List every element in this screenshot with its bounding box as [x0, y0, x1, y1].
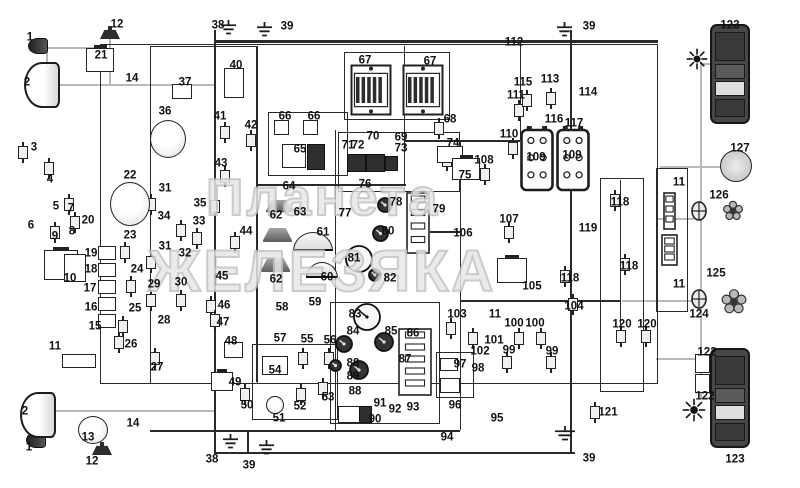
label-109: 109: [562, 150, 581, 162]
sensor-glyph: [468, 332, 478, 345]
label-39: 39: [243, 460, 256, 472]
label-105: 105: [522, 281, 541, 293]
label-74: 74: [447, 138, 460, 150]
label-41: 41: [214, 111, 227, 123]
label-67: 67: [424, 56, 437, 68]
label-85: 85: [385, 326, 398, 338]
label-50: 50: [241, 400, 254, 412]
label-111: 111: [507, 90, 525, 102]
label-77: 77: [339, 208, 352, 220]
label-70: 70: [367, 131, 380, 143]
label-38: 38: [212, 20, 225, 32]
label-24: 24: [131, 264, 144, 276]
label-81: 81: [348, 253, 361, 265]
label-62: 62: [270, 274, 283, 286]
sensor-glyph: [220, 126, 230, 139]
label-60: 60: [321, 272, 334, 284]
label-36: 36: [159, 106, 172, 118]
label-109: 109: [526, 152, 545, 164]
label-14: 14: [126, 73, 139, 85]
ground-39-top-a: [256, 22, 273, 37]
label-30: 30: [175, 277, 188, 289]
sensor-glyph: [616, 330, 626, 343]
connector-11-right-a: [663, 192, 676, 230]
label-11: 11: [673, 279, 685, 291]
sensor-glyph: [146, 256, 156, 269]
label-117: 117: [565, 118, 584, 130]
label-2: 2: [22, 406, 28, 418]
label-46: 46: [218, 300, 231, 312]
sensor-glyph: [508, 142, 518, 155]
tail-lamp-123-bottom: [710, 348, 750, 448]
label-17: 17: [84, 283, 97, 295]
label-123: 123: [725, 454, 744, 466]
lamp-127: [720, 150, 752, 182]
label-11: 11: [49, 341, 61, 353]
label-19: 19: [85, 248, 98, 260]
label-125: 125: [706, 268, 725, 280]
label-12: 12: [86, 456, 99, 468]
sensor-glyph: [114, 336, 124, 349]
label-44: 44: [240, 226, 253, 238]
label-88: 88: [349, 386, 362, 398]
connector-126: [690, 200, 708, 222]
label-68: 68: [444, 114, 457, 126]
label-31: 31: [159, 183, 172, 195]
label-47: 47: [217, 317, 230, 329]
sensor-glyph: [192, 232, 202, 245]
label-82: 82: [384, 273, 397, 285]
label-9: 9: [52, 231, 58, 243]
label-15: 15: [89, 321, 102, 333]
label-59: 59: [309, 297, 322, 309]
label-2: 2: [24, 77, 30, 89]
label-118: 118: [561, 273, 580, 285]
label-20: 20: [82, 215, 95, 227]
label-110: 110: [500, 129, 519, 141]
label-12: 12: [111, 19, 124, 31]
label-48: 48: [225, 336, 238, 348]
label-100: 100: [525, 318, 544, 330]
connector-11-right-b: [661, 234, 678, 266]
label-29: 29: [148, 279, 161, 291]
label-39: 39: [583, 21, 596, 33]
label-118: 118: [620, 261, 639, 273]
label-123: 123: [720, 20, 739, 32]
sensor-glyph: [230, 236, 240, 249]
ground-39-top-b: [556, 22, 573, 37]
fuse-19: [98, 246, 116, 260]
sensor-glyph: [480, 168, 490, 181]
label-86: 86: [407, 328, 420, 340]
sensor-glyph: [176, 294, 186, 307]
horn-12-bottom: [92, 442, 112, 455]
label-76: 76: [359, 179, 372, 191]
fuse-16: [98, 297, 116, 311]
sensor-glyph: [246, 134, 256, 147]
label-108: 108: [474, 155, 493, 167]
label-75: 75: [459, 170, 472, 182]
label-49: 49: [229, 377, 242, 389]
label-13: 13: [82, 432, 95, 444]
sensor-glyph: [434, 122, 444, 135]
label-52: 52: [294, 401, 307, 413]
label-55: 55: [301, 334, 314, 346]
label-67: 67: [359, 55, 372, 67]
label-37: 37: [179, 77, 192, 89]
label-53: 53: [322, 392, 335, 404]
label-39: 39: [583, 453, 596, 465]
label-18: 18: [85, 264, 98, 276]
component-40: [224, 68, 244, 98]
label-72: 72: [352, 140, 365, 152]
label-96: 96: [449, 400, 462, 412]
label-91: 91: [374, 398, 387, 410]
wiring-diagram: Планета ЖЕЛЕЗЯКА 12345769810201918171615…: [0, 0, 800, 488]
label-51: 51: [273, 413, 286, 425]
sensor-glyph: [536, 332, 546, 345]
label-56: 56: [324, 335, 337, 347]
label-38: 38: [206, 454, 219, 466]
wire: [150, 430, 460, 432]
fuse-18: [98, 263, 116, 277]
label-118: 118: [611, 197, 630, 209]
label-90: 90: [369, 414, 382, 426]
sensor-glyph: [502, 356, 512, 369]
label-112: 112: [505, 37, 524, 49]
daisy-icon-a: [722, 200, 744, 222]
label-80: 80: [382, 226, 395, 238]
gauge-88: [328, 358, 343, 373]
label-127: 127: [730, 143, 749, 155]
label-10: 10: [64, 273, 77, 285]
label-7: 7: [68, 203, 74, 215]
label-62: 62: [270, 210, 283, 222]
gray-wire: [656, 358, 696, 360]
component-65-b: [307, 144, 325, 170]
label-33: 33: [193, 216, 206, 228]
label-92: 92: [389, 404, 402, 416]
sensor-glyph: [126, 280, 136, 293]
wire: [214, 40, 658, 43]
alternator-22: [110, 182, 150, 226]
sensor-glyph: [298, 352, 308, 365]
label-31: 31: [159, 241, 172, 253]
label-58: 58: [276, 302, 289, 314]
label-93: 93: [407, 402, 420, 414]
tail-lamp-123-top: [710, 24, 750, 124]
sensor-glyph: [220, 170, 230, 183]
label-45: 45: [216, 271, 229, 283]
connector-125: [690, 288, 708, 310]
relay-72: [366, 154, 385, 172]
label-104: 104: [564, 301, 583, 313]
component-90: [338, 406, 360, 423]
label-113: 113: [541, 74, 560, 86]
gray-wire: [50, 410, 214, 412]
label-119: 119: [579, 223, 598, 235]
relay-105: [497, 258, 527, 283]
sensor-glyph: [296, 388, 306, 401]
label-126: 126: [709, 190, 728, 202]
label-87: 87: [399, 354, 412, 366]
label-114: 114: [579, 87, 598, 99]
label-11: 11: [489, 309, 501, 321]
label-5: 5: [53, 201, 59, 213]
label-95: 95: [491, 413, 504, 425]
fuse-17: [98, 280, 116, 294]
label-99: 99: [546, 346, 559, 358]
label-94: 94: [441, 432, 454, 444]
sensor-glyph: [546, 92, 556, 105]
label-97: 97: [454, 359, 467, 371]
label-6: 6: [28, 220, 34, 232]
label-98: 98: [472, 363, 485, 375]
label-16: 16: [85, 302, 98, 314]
label-121: 121: [598, 407, 617, 419]
ground-39-bottom-a: [258, 440, 275, 455]
sensor-glyph: [176, 224, 186, 237]
flasher-icon-top: [686, 48, 708, 70]
label-64: 64: [283, 181, 296, 193]
label-122: 122: [695, 391, 714, 403]
label-26: 26: [125, 339, 138, 351]
component-96: [440, 378, 460, 393]
sensor-glyph: [146, 294, 156, 307]
label-57: 57: [274, 333, 287, 345]
label-43: 43: [215, 158, 228, 170]
label-32: 32: [179, 248, 192, 260]
label-78: 78: [390, 197, 403, 209]
label-106: 106: [453, 228, 472, 240]
sensor-glyph: [446, 322, 456, 335]
label-54: 54: [269, 365, 282, 377]
label-99: 99: [503, 345, 516, 357]
gauge-82: [367, 267, 383, 283]
label-28: 28: [158, 315, 171, 327]
sensor-glyph: [641, 330, 651, 343]
label-22: 22: [124, 170, 137, 182]
label-63: 63: [294, 207, 307, 219]
label-120: 120: [612, 319, 631, 331]
label-40: 40: [230, 60, 243, 72]
fuse-block-67-b: [402, 64, 444, 116]
sensor-glyph: [504, 226, 514, 239]
label-35: 35: [194, 198, 207, 210]
label-61: 61: [317, 227, 330, 239]
fuse-panel-79: [406, 192, 430, 254]
ground-38-bottom: [222, 434, 239, 449]
sensor-glyph: [18, 146, 28, 159]
sensor-glyph: [120, 246, 130, 259]
label-89: 89: [347, 371, 360, 383]
fuse-block-67-a: [350, 64, 392, 116]
label-124: 124: [689, 309, 708, 321]
label-100: 100: [504, 318, 523, 330]
junction-11-left: [62, 354, 96, 368]
label-23: 23: [124, 230, 137, 242]
label-65: 65: [294, 144, 307, 156]
daisy-icon-b: [720, 288, 748, 316]
ground-39-bottom-b: [554, 426, 576, 441]
label-79: 79: [433, 204, 446, 216]
label-116: 116: [545, 114, 564, 126]
distributor-36: [150, 120, 186, 158]
label-8: 8: [69, 226, 75, 238]
label-66: 66: [308, 111, 321, 123]
label-1: 1: [26, 442, 32, 454]
label-88: 88: [347, 358, 360, 370]
label-107: 107: [499, 214, 518, 226]
sensor-glyph: [514, 332, 524, 345]
label-4: 4: [47, 174, 53, 186]
label-1: 1: [27, 32, 33, 44]
label-102: 102: [470, 346, 489, 358]
label-11: 11: [673, 177, 685, 189]
label-27: 27: [151, 362, 164, 374]
sensor-glyph: [546, 356, 556, 369]
label-84: 84: [347, 326, 360, 338]
sensor-glyph: [210, 200, 220, 213]
label-34: 34: [158, 211, 171, 223]
relay-69: [385, 156, 398, 171]
label-14: 14: [127, 418, 140, 430]
label-25: 25: [129, 303, 142, 315]
label-122: 122: [697, 347, 716, 359]
label-83: 83: [349, 309, 362, 321]
label-103: 103: [447, 309, 466, 321]
label-120: 120: [637, 319, 656, 331]
wire: [247, 430, 249, 454]
label-66: 66: [279, 111, 292, 123]
label-42: 42: [245, 120, 258, 132]
frame-box: [600, 178, 644, 392]
label-73: 73: [395, 143, 408, 155]
label-21: 21: [95, 50, 108, 62]
label-115: 115: [514, 77, 533, 89]
relay-71: [347, 154, 366, 172]
label-39: 39: [281, 21, 294, 33]
label-3: 3: [31, 142, 37, 154]
